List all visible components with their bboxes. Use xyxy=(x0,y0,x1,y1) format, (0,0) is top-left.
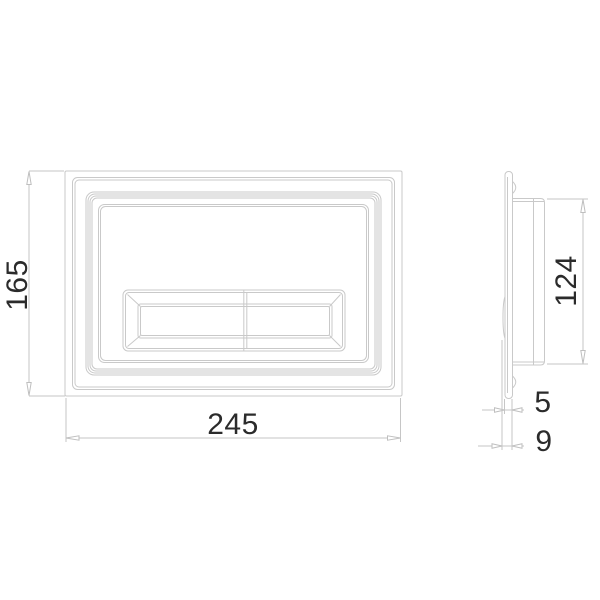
plate-frame-step2-line3 xyxy=(90,196,377,371)
dimension-thickness-5: 5 xyxy=(482,386,552,419)
dim-value-thickness: 5 xyxy=(534,386,551,419)
front-view xyxy=(65,171,402,396)
flush-plate-drawing: 165 245 124 5 xyxy=(0,0,600,600)
plate-frame-step2-line1 xyxy=(86,192,381,375)
button-face-outer xyxy=(138,304,332,338)
arrow-right-icon xyxy=(492,444,502,448)
dimension-width-245: 245 xyxy=(66,398,401,442)
side-view xyxy=(503,172,545,399)
plate-inner-face-inner xyxy=(101,207,367,361)
dim-value-depth: 9 xyxy=(535,425,552,458)
button-recess-inner xyxy=(126,293,343,349)
button-face-inner xyxy=(141,307,330,336)
plate-frame-step1-outer xyxy=(73,178,395,390)
dim-value-height: 165 xyxy=(1,259,34,311)
button-bevel-top-right xyxy=(330,295,341,307)
button-bevel-bottom-right xyxy=(330,336,341,347)
technical-drawing-page: 165 245 124 5 xyxy=(0,0,600,600)
dimension-housing-124: 124 xyxy=(547,199,588,364)
arrow-left-icon xyxy=(512,408,522,412)
dimension-height-165: 165 xyxy=(1,171,65,396)
arrow-up-icon xyxy=(27,172,31,185)
dim-value-width: 245 xyxy=(207,408,259,441)
arrow-left-icon xyxy=(66,436,79,440)
arrow-left-icon xyxy=(512,444,522,448)
button-recess-outer xyxy=(123,290,345,351)
side-housing-outline xyxy=(513,199,545,366)
plate-frame-step2-line2 xyxy=(88,194,379,373)
arrow-up-icon xyxy=(581,200,585,213)
arrow-down-icon xyxy=(27,383,31,396)
side-plate-profile xyxy=(505,172,513,399)
plate-frame-step1-inner xyxy=(75,180,392,387)
arrow-down-icon xyxy=(581,351,585,364)
plate-inner-face-outer xyxy=(99,205,369,363)
arrow-right-icon xyxy=(495,408,505,412)
button-bevel-bottom-left xyxy=(128,336,141,347)
dual-flush-button xyxy=(123,290,345,351)
button-bevel-top-left xyxy=(128,295,141,307)
arrow-right-icon xyxy=(388,436,401,440)
plate-frame-step2-line4 xyxy=(92,198,375,369)
dim-value-housing-height: 124 xyxy=(550,255,583,307)
